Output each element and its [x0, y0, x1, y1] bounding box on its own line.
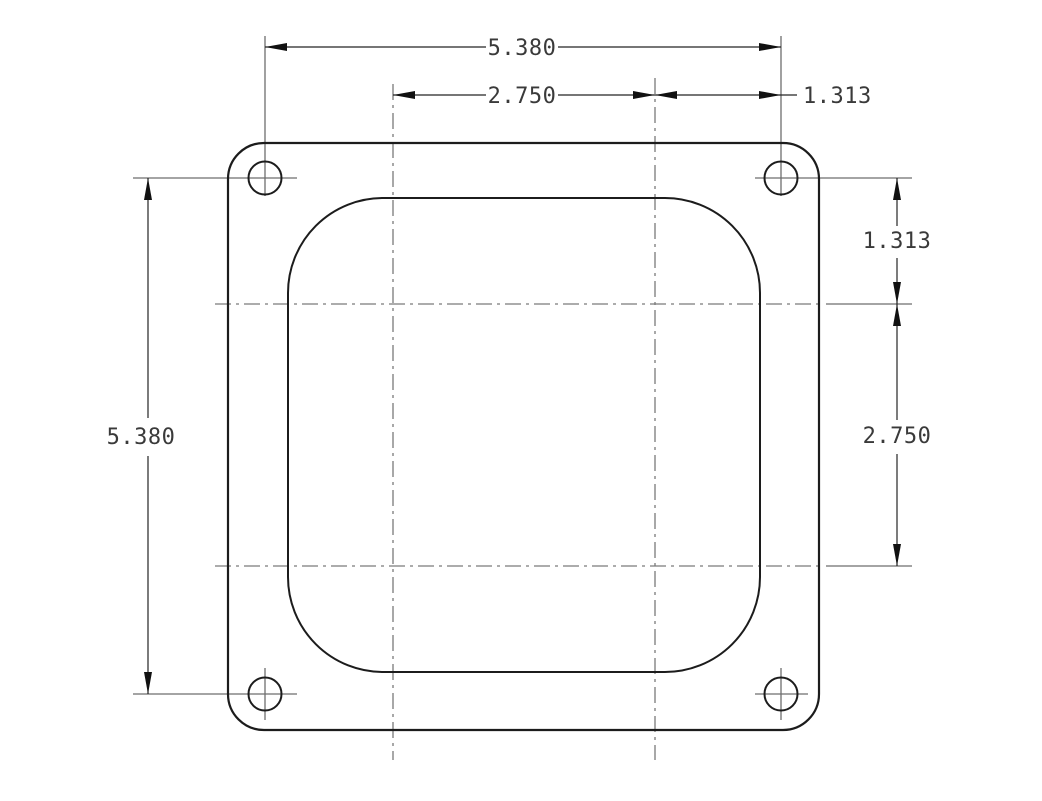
dim-label-top-bore-span: 2.750	[488, 84, 557, 109]
bore-opening-outline	[288, 198, 760, 672]
centerlines	[215, 78, 819, 760]
dim-label-top-bolt-span: 5.380	[488, 36, 557, 61]
arrow-up-icon	[893, 304, 901, 326]
flange-outline	[228, 143, 819, 730]
arrow-right-icon	[633, 91, 655, 99]
dim-left-bolt-span: 5.380	[107, 178, 176, 694]
extension-lines	[133, 36, 912, 720]
arrow-up-icon	[144, 178, 152, 200]
arrow-left-icon	[393, 91, 415, 99]
arrow-right-icon	[759, 43, 781, 51]
arrow-down-icon	[144, 672, 152, 694]
dim-top-bore-span: 2.750	[393, 84, 655, 109]
flange	[228, 143, 819, 730]
technical-drawing-canvas: 5.380 2.750 1.313 5.380 1.313 2.750	[0, 0, 1042, 801]
arrow-down-icon	[893, 544, 901, 566]
dim-label-right-bore-span: 2.750	[863, 424, 932, 449]
dim-label-left-bolt-span: 5.380	[107, 425, 176, 450]
arrow-down-icon	[893, 282, 901, 304]
dim-right-bolt-to-bore: 1.313	[863, 178, 932, 304]
dim-label-right-bolt-to-bore: 1.313	[863, 229, 932, 254]
arrow-left-icon	[655, 91, 677, 99]
drawing-sheet: 5.380 2.750 1.313 5.380 1.313 2.750	[0, 0, 1042, 801]
arrow-right-icon	[759, 91, 781, 99]
dim-top-bore-to-bolt: 1.313	[655, 84, 872, 109]
arrow-left-icon	[265, 43, 287, 51]
dim-right-bore-span: 2.750	[863, 304, 932, 566]
arrow-up-icon	[893, 178, 901, 200]
dim-top-bolt-span: 5.380	[265, 36, 781, 61]
dim-label-top-bore-to-bolt: 1.313	[803, 84, 872, 109]
